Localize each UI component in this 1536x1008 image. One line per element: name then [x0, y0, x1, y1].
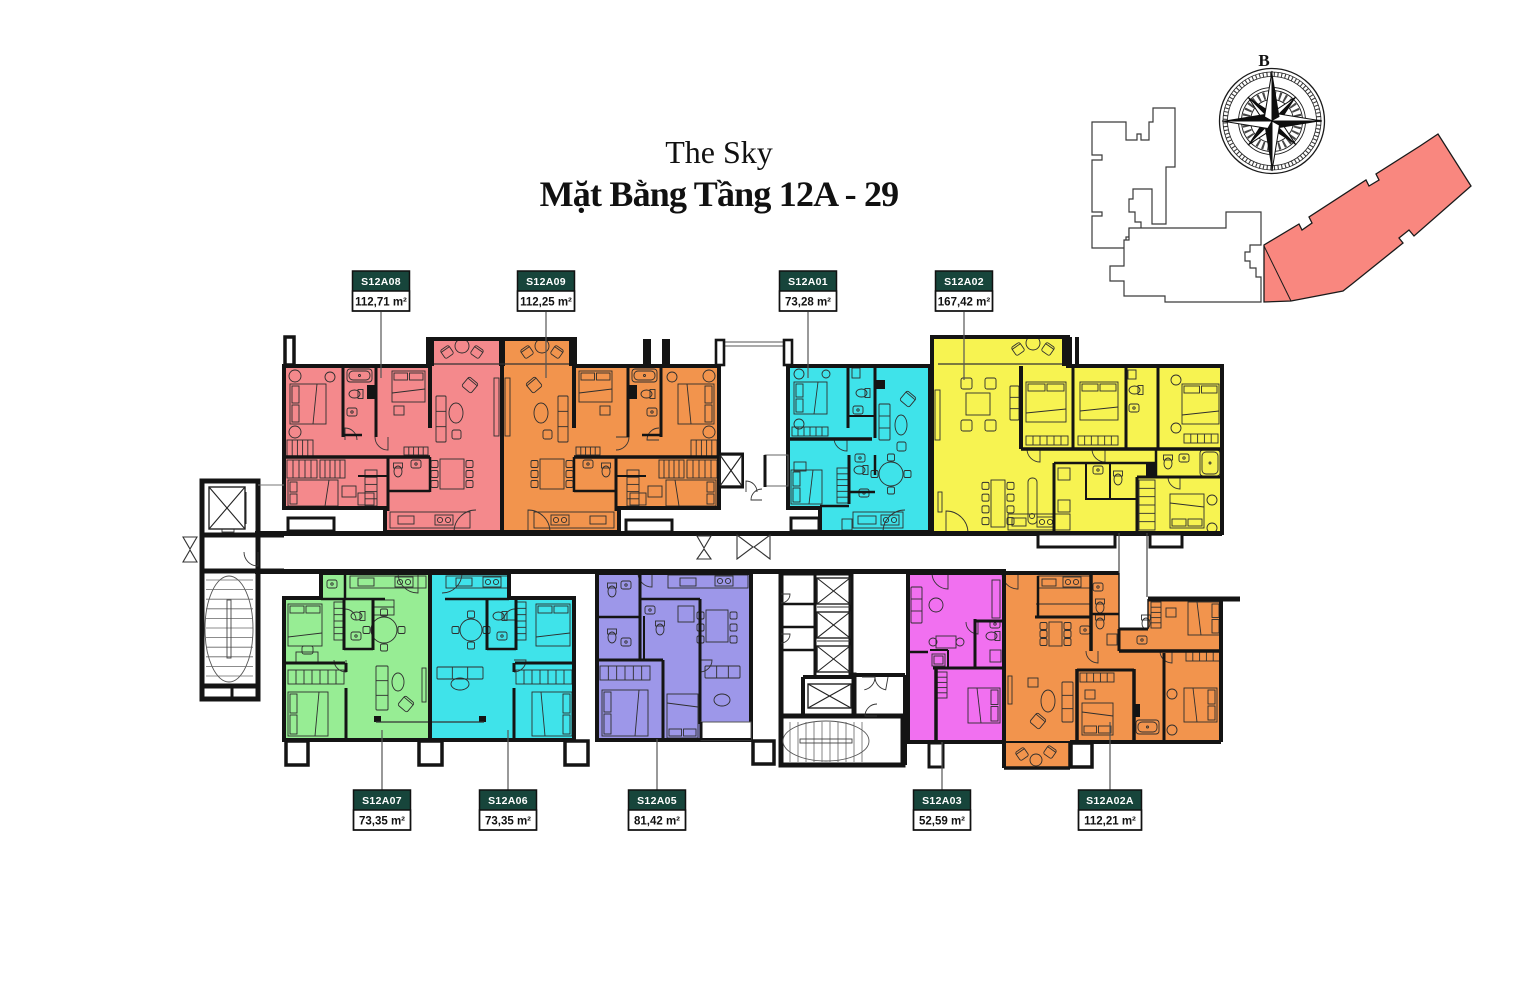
svg-text:112,71 m²: 112,71 m²	[355, 297, 407, 309]
svg-text:112,25 m²: 112,25 m²	[520, 297, 572, 309]
svg-text:S12A06: S12A06	[488, 795, 528, 807]
svg-text:112,21 m²: 112,21 m²	[1084, 816, 1136, 828]
svg-text:S12A08: S12A08	[361, 276, 401, 288]
svg-text:52,59 m²: 52,59 m²	[919, 816, 965, 828]
svg-text:B: B	[1258, 51, 1269, 70]
svg-text:73,35 m²: 73,35 m²	[485, 816, 531, 828]
svg-text:S12A05: S12A05	[637, 795, 677, 807]
svg-text:S12A03: S12A03	[922, 795, 962, 807]
svg-text:73,28 m²: 73,28 m²	[785, 297, 831, 309]
svg-text:81,42 m²: 81,42 m²	[634, 816, 680, 828]
svg-text:S12A01: S12A01	[788, 276, 828, 288]
svg-text:73,35 m²: 73,35 m²	[359, 816, 405, 828]
svg-text:S12A07: S12A07	[362, 795, 402, 807]
svg-text:S12A02A: S12A02A	[1086, 795, 1134, 807]
svg-text:167,42 m²: 167,42 m²	[938, 297, 991, 309]
svg-text:The Sky: The Sky	[665, 134, 773, 170]
svg-text:Mặt Bằng Tầng 12A - 29: Mặt Bằng Tầng 12A - 29	[540, 174, 899, 214]
svg-text:S12A02: S12A02	[944, 276, 984, 288]
svg-text:S12A09: S12A09	[526, 276, 566, 288]
